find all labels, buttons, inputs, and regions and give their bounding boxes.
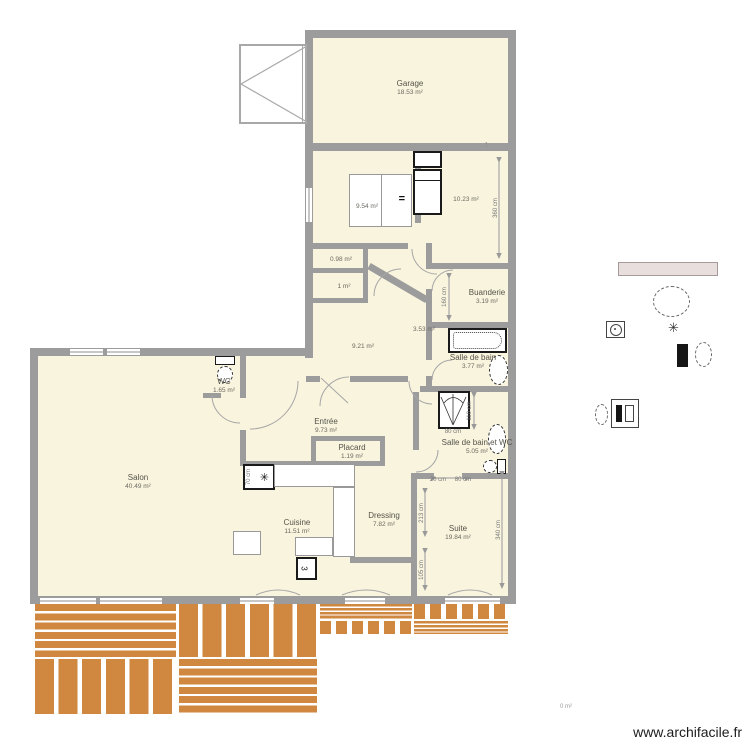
chair-icon — [595, 404, 608, 425]
shelf-bar-icon — [618, 262, 718, 276]
desk-equals-glyph: = — [399, 193, 405, 205]
kitchen-counter — [274, 464, 355, 487]
floor-plan-canvas: = ✳ 3 ✳ — [0, 0, 750, 750]
wall — [363, 243, 368, 303]
dimension-label: 340 cm — [496, 520, 502, 540]
deck-panel — [35, 604, 176, 657]
nightstand-icon — [413, 151, 442, 168]
wall — [313, 268, 368, 273]
bathtub-icon — [448, 328, 507, 353]
window — [107, 349, 140, 355]
deck-panel — [320, 621, 412, 634]
dimension-label: 105 cm — [419, 560, 425, 580]
desk-station-icon — [611, 399, 639, 428]
wall — [305, 30, 516, 38]
wall — [426, 289, 432, 322]
cooktop-icon — [606, 321, 625, 338]
watermark-link[interactable]: www.archifacile.fr — [633, 724, 742, 740]
deck-panel — [414, 621, 508, 634]
carport-outline — [239, 44, 307, 124]
deck-panel — [414, 604, 508, 619]
wall — [305, 143, 313, 358]
dimension-label: 20 cm — [430, 477, 446, 483]
wall — [411, 479, 417, 596]
dimension-label: 213 cm — [419, 503, 425, 523]
stove-icon: 3 — [296, 557, 317, 580]
washbasin-icon — [489, 355, 508, 385]
kitchen-counter — [333, 487, 355, 557]
deck-panel — [35, 659, 176, 714]
wall — [313, 298, 368, 303]
desk-icon: = — [349, 174, 412, 227]
dimension-label: 70 cm — [246, 469, 252, 485]
toilet-bowl-icon — [217, 366, 233, 383]
toilet-tank-icon — [215, 356, 235, 365]
deck-panel — [320, 604, 412, 619]
wall — [426, 263, 508, 269]
window — [70, 349, 103, 355]
wall — [240, 348, 246, 398]
kitchen-counter — [295, 537, 333, 556]
fridge-icon — [677, 344, 688, 367]
washbasin-icon — [488, 424, 506, 454]
window — [306, 188, 312, 222]
wall — [508, 30, 516, 604]
wall — [426, 328, 432, 360]
stray-area-label: 0 m² — [560, 704, 572, 710]
toilet-bowl-icon — [483, 460, 497, 473]
snowflake-icon: ✳ — [260, 471, 269, 484]
wall — [311, 436, 385, 441]
wall — [426, 376, 432, 388]
garage-door-line — [305, 44, 306, 124]
wall — [350, 557, 413, 563]
wall — [203, 393, 221, 398]
chair-icon — [695, 342, 712, 367]
snowflake-icon: ✳ — [668, 320, 679, 336]
dimension-label: 160 cm — [442, 287, 448, 307]
wall — [426, 243, 432, 263]
garage-door-line — [302, 44, 303, 124]
cabinet-icon — [233, 531, 261, 555]
stove-glyph: 3 — [300, 566, 309, 570]
round-table-icon — [653, 286, 690, 317]
dimension-label: 80 cm — [445, 429, 461, 435]
wall — [306, 376, 320, 382]
north-arrow-icon: ↑ — [484, 139, 489, 149]
floor-garage — [313, 38, 508, 143]
dimension-label: 110 cm — [467, 401, 473, 420]
toilet-tank-icon — [497, 459, 506, 474]
wall — [240, 430, 246, 463]
dimension-label: 360 cm — [493, 198, 499, 218]
dimension-label: 80 cm — [455, 477, 471, 483]
bed-icon — [413, 169, 442, 215]
wall — [413, 392, 419, 450]
shower-icon — [438, 391, 470, 429]
deck-panel — [179, 659, 317, 714]
deck-panel — [179, 604, 317, 657]
wall — [30, 348, 38, 604]
wall — [313, 243, 408, 249]
wall — [350, 376, 408, 382]
